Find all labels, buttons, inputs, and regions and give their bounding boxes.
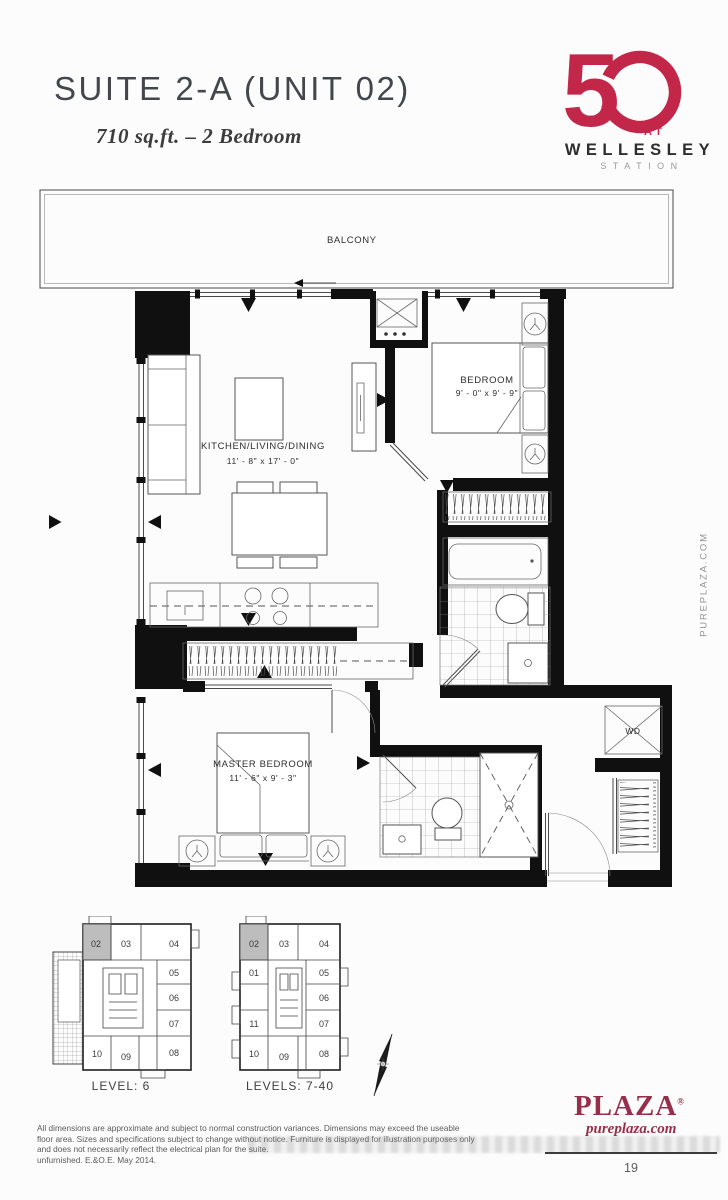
kp1-unit-06: 06	[169, 993, 179, 1003]
shower	[480, 753, 538, 857]
coffee-table	[235, 378, 283, 440]
ensuite-bathroom	[380, 753, 538, 857]
kp2-unit-09: 09	[279, 1052, 289, 1062]
plaza-logo: PLAZA®	[574, 1090, 685, 1123]
foyer-closet	[613, 778, 658, 854]
kitchen-counter	[150, 583, 378, 627]
wellesley-station-logo: 5 AT WELLESLEY STATION	[556, 18, 722, 170]
suite-size-subtitle: 710 sq.ft. – 2 Bedroom	[96, 124, 302, 149]
kp2-unit-05: 05	[319, 968, 329, 978]
bedroom-2: BEDROOM 9' - 0" x 9' - 9"	[432, 303, 548, 473]
registered-mark: ®	[677, 1096, 685, 1106]
master-bed	[217, 733, 309, 833]
dining-table	[232, 482, 327, 568]
kp2-unit-08: 08	[319, 1049, 329, 1059]
kp1-unit-02: 02	[91, 939, 101, 949]
bedroom-dims: 9' - 0" x 9' - 9"	[456, 388, 518, 398]
logo-wellesley: WELLESLEY	[565, 141, 715, 159]
nightstand-lamp	[522, 435, 548, 473]
kp2-unit-02: 02	[249, 939, 259, 949]
master-closet	[183, 643, 413, 679]
svg-text:5: 5	[562, 33, 620, 149]
toilet	[496, 593, 544, 625]
bedroom-label: BEDROOM	[460, 375, 513, 386]
nightstand-lamp	[522, 303, 548, 345]
footer-divider	[545, 1152, 717, 1154]
floorplan-drawing: BALCONY	[35, 185, 690, 895]
master-label: MASTER BEDROOM	[213, 759, 313, 770]
kp2-unit-11: 11	[249, 1019, 258, 1029]
kp2-unit-03: 03	[279, 939, 289, 949]
compass-north-icon	[362, 1026, 404, 1104]
main-bathroom	[440, 492, 551, 685]
balcony-label: BALCONY	[327, 235, 377, 246]
kp1-unit-05: 05	[169, 968, 179, 978]
kp1-unit-08: 08	[169, 1048, 179, 1058]
master-dims: 11' - 6" x 9' - 3"	[229, 773, 296, 783]
kp1-unit-10: 10	[92, 1049, 102, 1059]
pillow	[220, 835, 262, 857]
plaza-website: pureplaza.com	[586, 1121, 676, 1138]
keyplan2-caption: LEVELS: 7-40	[246, 1079, 334, 1093]
nightstand-lamp	[179, 836, 215, 866]
kp2-unit-10: 10	[249, 1049, 259, 1059]
logo-50-icon: 5 AT	[562, 33, 687, 149]
ensuite-vanity	[383, 825, 421, 854]
kp2-unit-07: 07	[319, 1019, 329, 1029]
kp2-unit-04: 04	[319, 939, 329, 949]
bathroom-vanity	[508, 643, 548, 683]
watermark-band	[248, 1136, 720, 1153]
kitchen-dims: 11' - 8" x 17' - 0"	[227, 456, 300, 466]
sofa	[148, 355, 200, 494]
kp2-unit-06: 06	[319, 993, 329, 1003]
side-watermark: PUREPLAZA.COM	[699, 525, 712, 645]
page-number: 19	[545, 1161, 717, 1175]
keyplan-level-6: 02 03 04 05 06 07 10 09 08 LEVEL: 6	[45, 916, 205, 1098]
oven	[377, 299, 417, 336]
kp1-unit-07: 07	[169, 1019, 179, 1029]
kp1-unit-09: 09	[121, 1052, 131, 1062]
nightstand-lamp	[311, 836, 345, 866]
logo-at: AT	[644, 126, 666, 138]
kitchen-label: KITCHEN/LIVING/DINING	[201, 441, 325, 452]
keyplan1-caption: LEVEL: 6	[92, 1079, 151, 1093]
page-title: SUITE 2-A (UNIT 02)	[54, 70, 411, 108]
toilet	[432, 798, 462, 840]
logo-station: STATION	[600, 161, 683, 170]
kp1-unit-04: 04	[169, 939, 179, 949]
kp2-unit-01: 01	[249, 968, 259, 978]
laundry-label: WD	[625, 726, 640, 736]
balcony: BALCONY	[40, 190, 673, 288]
floorplan-page: SUITE 2-A (UNIT 02) 710 sq.ft. – 2 Bedro…	[0, 0, 728, 1200]
master-bedroom: MASTER BEDROOM 11' - 6" x 9' - 3"	[179, 733, 345, 866]
keyplan-levels-7-40: 02 03 04 01 05 06 11 07 10 09 08 LEVELS:…	[228, 916, 353, 1098]
kp1-unit-03: 03	[121, 939, 131, 949]
